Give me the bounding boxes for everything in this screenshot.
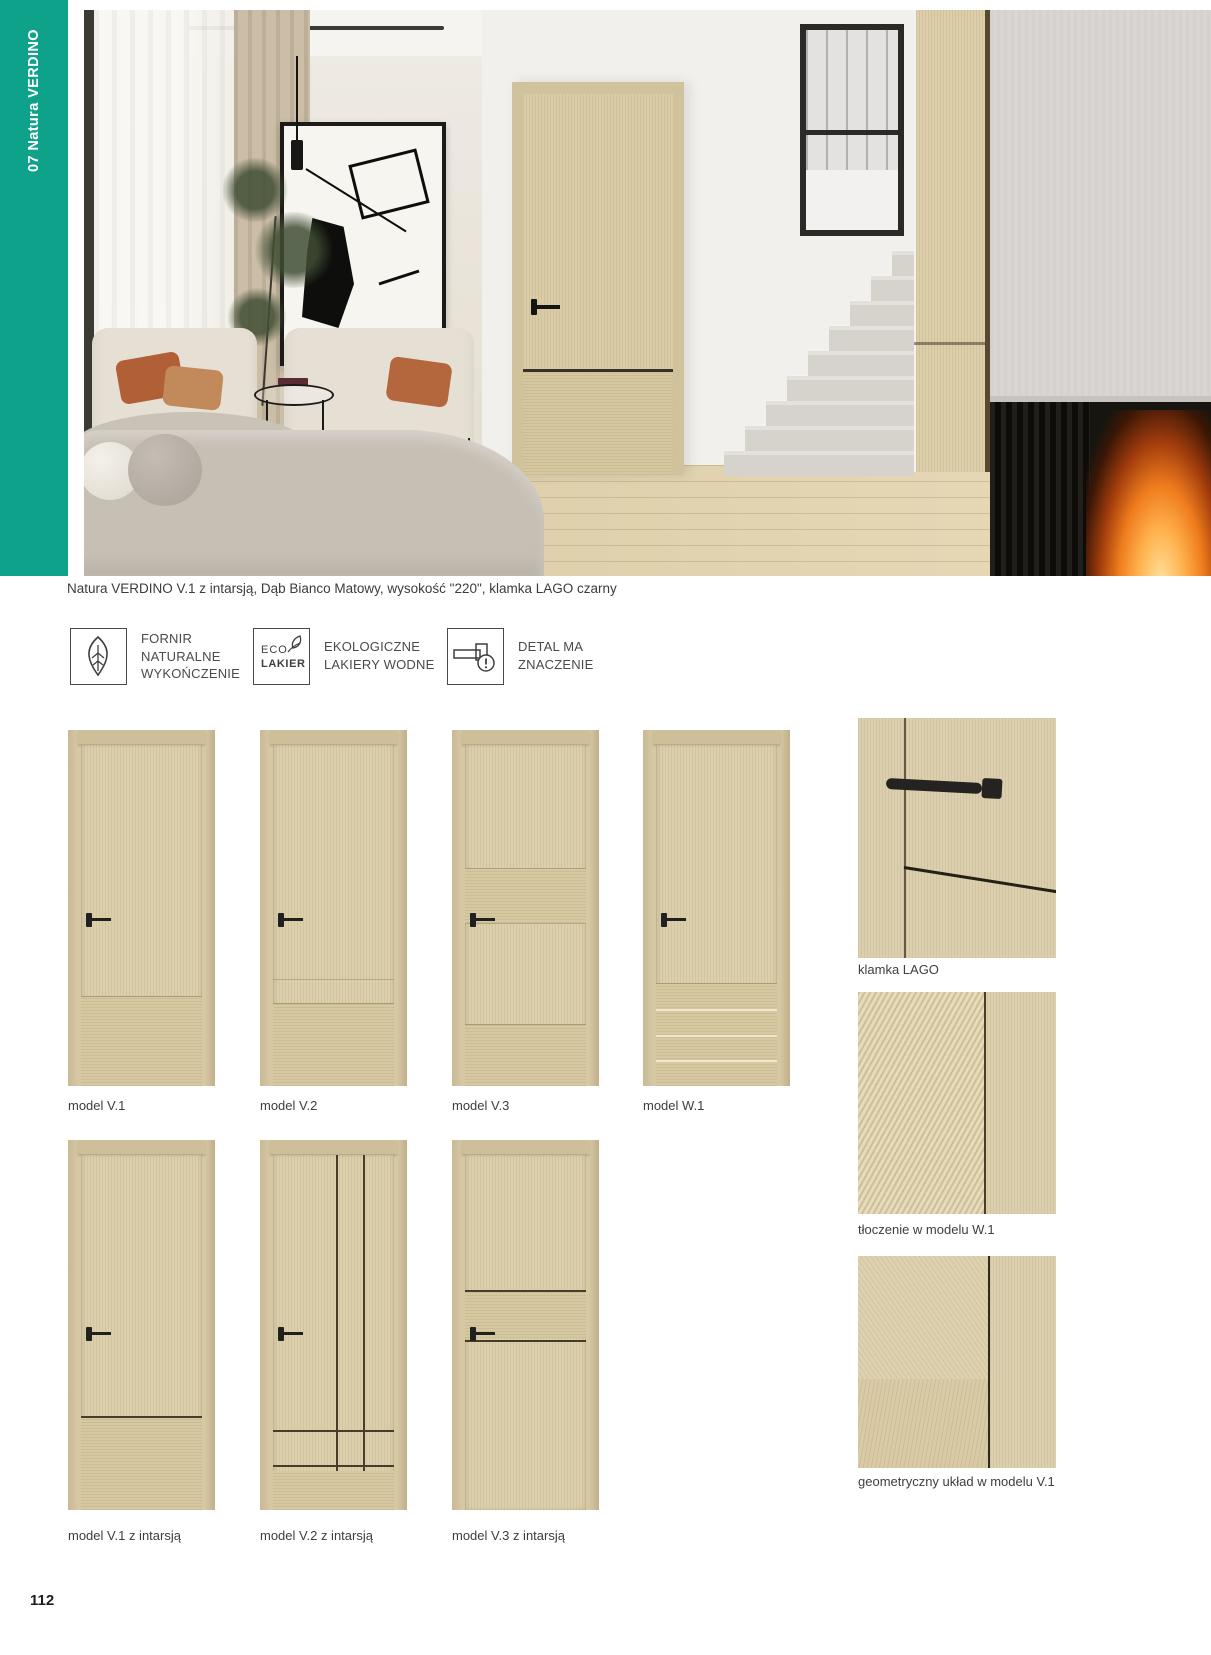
emboss-line	[656, 1060, 777, 1062]
door-thumbnail-model-v2	[260, 730, 407, 1086]
cushion	[385, 356, 453, 408]
groove-line	[273, 979, 394, 980]
door-handle	[470, 913, 496, 927]
stair-step	[724, 450, 914, 476]
intarsia-line	[273, 1430, 394, 1432]
door-handle	[470, 1327, 496, 1341]
door-bottom-band	[273, 1471, 394, 1510]
door-frame-lintel	[270, 730, 397, 744]
wood-paneling	[914, 10, 992, 472]
door-frame-lintel	[653, 730, 780, 744]
intarsia-line	[273, 1465, 394, 1467]
hero-photo	[84, 10, 1211, 576]
horizontal-veneer	[858, 1379, 988, 1468]
door-handle	[278, 1327, 304, 1341]
door-leaf	[523, 94, 673, 475]
leaf-icon	[71, 629, 125, 683]
embossed-texture	[858, 992, 984, 1214]
plant-foliage	[220, 158, 290, 222]
door-thumbnail-model-v1-intarsia	[68, 1140, 215, 1510]
cushion	[162, 365, 224, 411]
model-label: model V.2 z intarsją	[260, 1528, 373, 1543]
stair-step	[808, 350, 914, 376]
door-thumbnail-model-w1	[643, 730, 790, 1086]
panel-seam	[914, 342, 990, 345]
fireplace-flames	[1086, 410, 1211, 576]
handle-rosette	[981, 778, 1002, 799]
diagonal-veneer	[858, 1256, 988, 1379]
model-label: model V.3 z intarsją	[452, 1528, 565, 1543]
door-bottom-band	[81, 996, 202, 1086]
detail-photo-embossing-w1	[858, 992, 1056, 1214]
door-leaf	[656, 745, 777, 1086]
panel-seam	[984, 992, 986, 1214]
feature-badge-detail	[447, 628, 504, 685]
stair-step	[850, 300, 914, 326]
door-leaf	[465, 1155, 586, 1510]
intarsia-line-vertical	[336, 1155, 338, 1510]
detail-label: tłoczenie w modelu W.1	[858, 1222, 995, 1237]
pendant-lamp-cord	[296, 56, 298, 142]
door-bottom-band	[273, 1003, 394, 1086]
door-handle	[86, 1327, 112, 1341]
eco-badge-text: LAKIER	[261, 658, 306, 670]
door-handle	[86, 913, 112, 927]
intarsia-line	[904, 866, 1056, 896]
door-handle	[661, 913, 687, 927]
plant-foliage	[252, 212, 336, 288]
staircase-window-mullion	[800, 130, 904, 135]
door-leaf	[81, 745, 202, 1086]
detail-photo-geometric-v1	[858, 1256, 1056, 1468]
door-leaf	[273, 1155, 394, 1510]
door-frame-lintel	[270, 1140, 397, 1154]
feature-label-eco-lacquer: EKOLOGICZNE LAKIERY WODNE	[324, 638, 435, 673]
hero-caption: Natura VERDINO V.1 z intarsją, Dąb Bianc…	[67, 581, 617, 596]
door-frame-lintel	[462, 1140, 589, 1154]
stair-step	[766, 400, 914, 426]
door-leaf	[465, 745, 586, 1086]
door-thumbnail-model-v3-intarsia	[452, 1140, 599, 1510]
door-handle-lever	[536, 305, 560, 309]
stair-step	[871, 275, 914, 301]
door-leaf	[273, 745, 394, 1086]
door-frame-lintel	[78, 730, 205, 744]
door-thumbnail-model-v3	[452, 730, 599, 1086]
fireplace-slats	[990, 402, 1090, 576]
door-frame-lintel	[78, 1140, 205, 1154]
detail-photo-handle-lago	[858, 718, 1056, 958]
emboss-line	[656, 1009, 777, 1011]
door-thumbnail-model-v2-intarsia	[260, 1140, 407, 1510]
door-bottom-band	[81, 1418, 202, 1510]
model-label: model V.1	[68, 1098, 125, 1113]
door-frame-lintel	[462, 730, 589, 744]
emboss-line	[656, 1035, 777, 1037]
page-number: 112	[30, 1592, 54, 1609]
art-line	[379, 270, 420, 286]
chimney-breast	[990, 10, 1211, 402]
feature-badge-eco-lacquer: ECO LAKIER	[253, 628, 310, 685]
detail-label: geometryczny układ w modelu V.1	[858, 1474, 1055, 1489]
door-thumbnail-model-v1	[68, 730, 215, 1086]
intarsia-line-vertical	[363, 1155, 365, 1510]
art-frame-shape	[348, 148, 429, 219]
chapter-label: 07 Natura VERDINO	[26, 29, 42, 172]
model-label: model V.3	[452, 1098, 509, 1113]
door-bottom-band	[523, 372, 673, 475]
door-handle-detail-icon	[448, 629, 502, 683]
intarsia-line-vertical	[988, 1256, 990, 1468]
door-bottom-band	[465, 1024, 586, 1086]
stair-step	[745, 425, 914, 451]
door-leaf	[81, 1155, 202, 1510]
model-label: model V.2	[260, 1098, 317, 1113]
door-handle	[278, 913, 304, 927]
feature-badge-veneer	[70, 628, 127, 685]
detail-label: klamka LAGO	[858, 962, 939, 977]
fireplace	[990, 402, 1211, 576]
model-label: model W.1	[643, 1098, 704, 1113]
feature-label-detail: DETAL MA ZNACZENIE	[518, 638, 593, 673]
interior-door	[512, 82, 684, 475]
stair-step	[829, 325, 914, 351]
catalog-page: 07 Natura VERDINO	[0, 0, 1211, 1655]
round-pillow-gray	[128, 434, 202, 506]
feature-label-veneer: FORNIR NATURALNE WYKOŃCZENIE	[141, 630, 240, 683]
model-label: model V.1 z intarsją	[68, 1528, 181, 1543]
chapter-sidebar: 07 Natura VERDINO	[0, 0, 68, 576]
eco-lakier-icon	[282, 632, 306, 656]
stair-step	[787, 375, 914, 401]
intarsia-line-vertical	[904, 718, 906, 958]
handle-lever	[886, 778, 982, 794]
stair-step	[892, 250, 914, 276]
